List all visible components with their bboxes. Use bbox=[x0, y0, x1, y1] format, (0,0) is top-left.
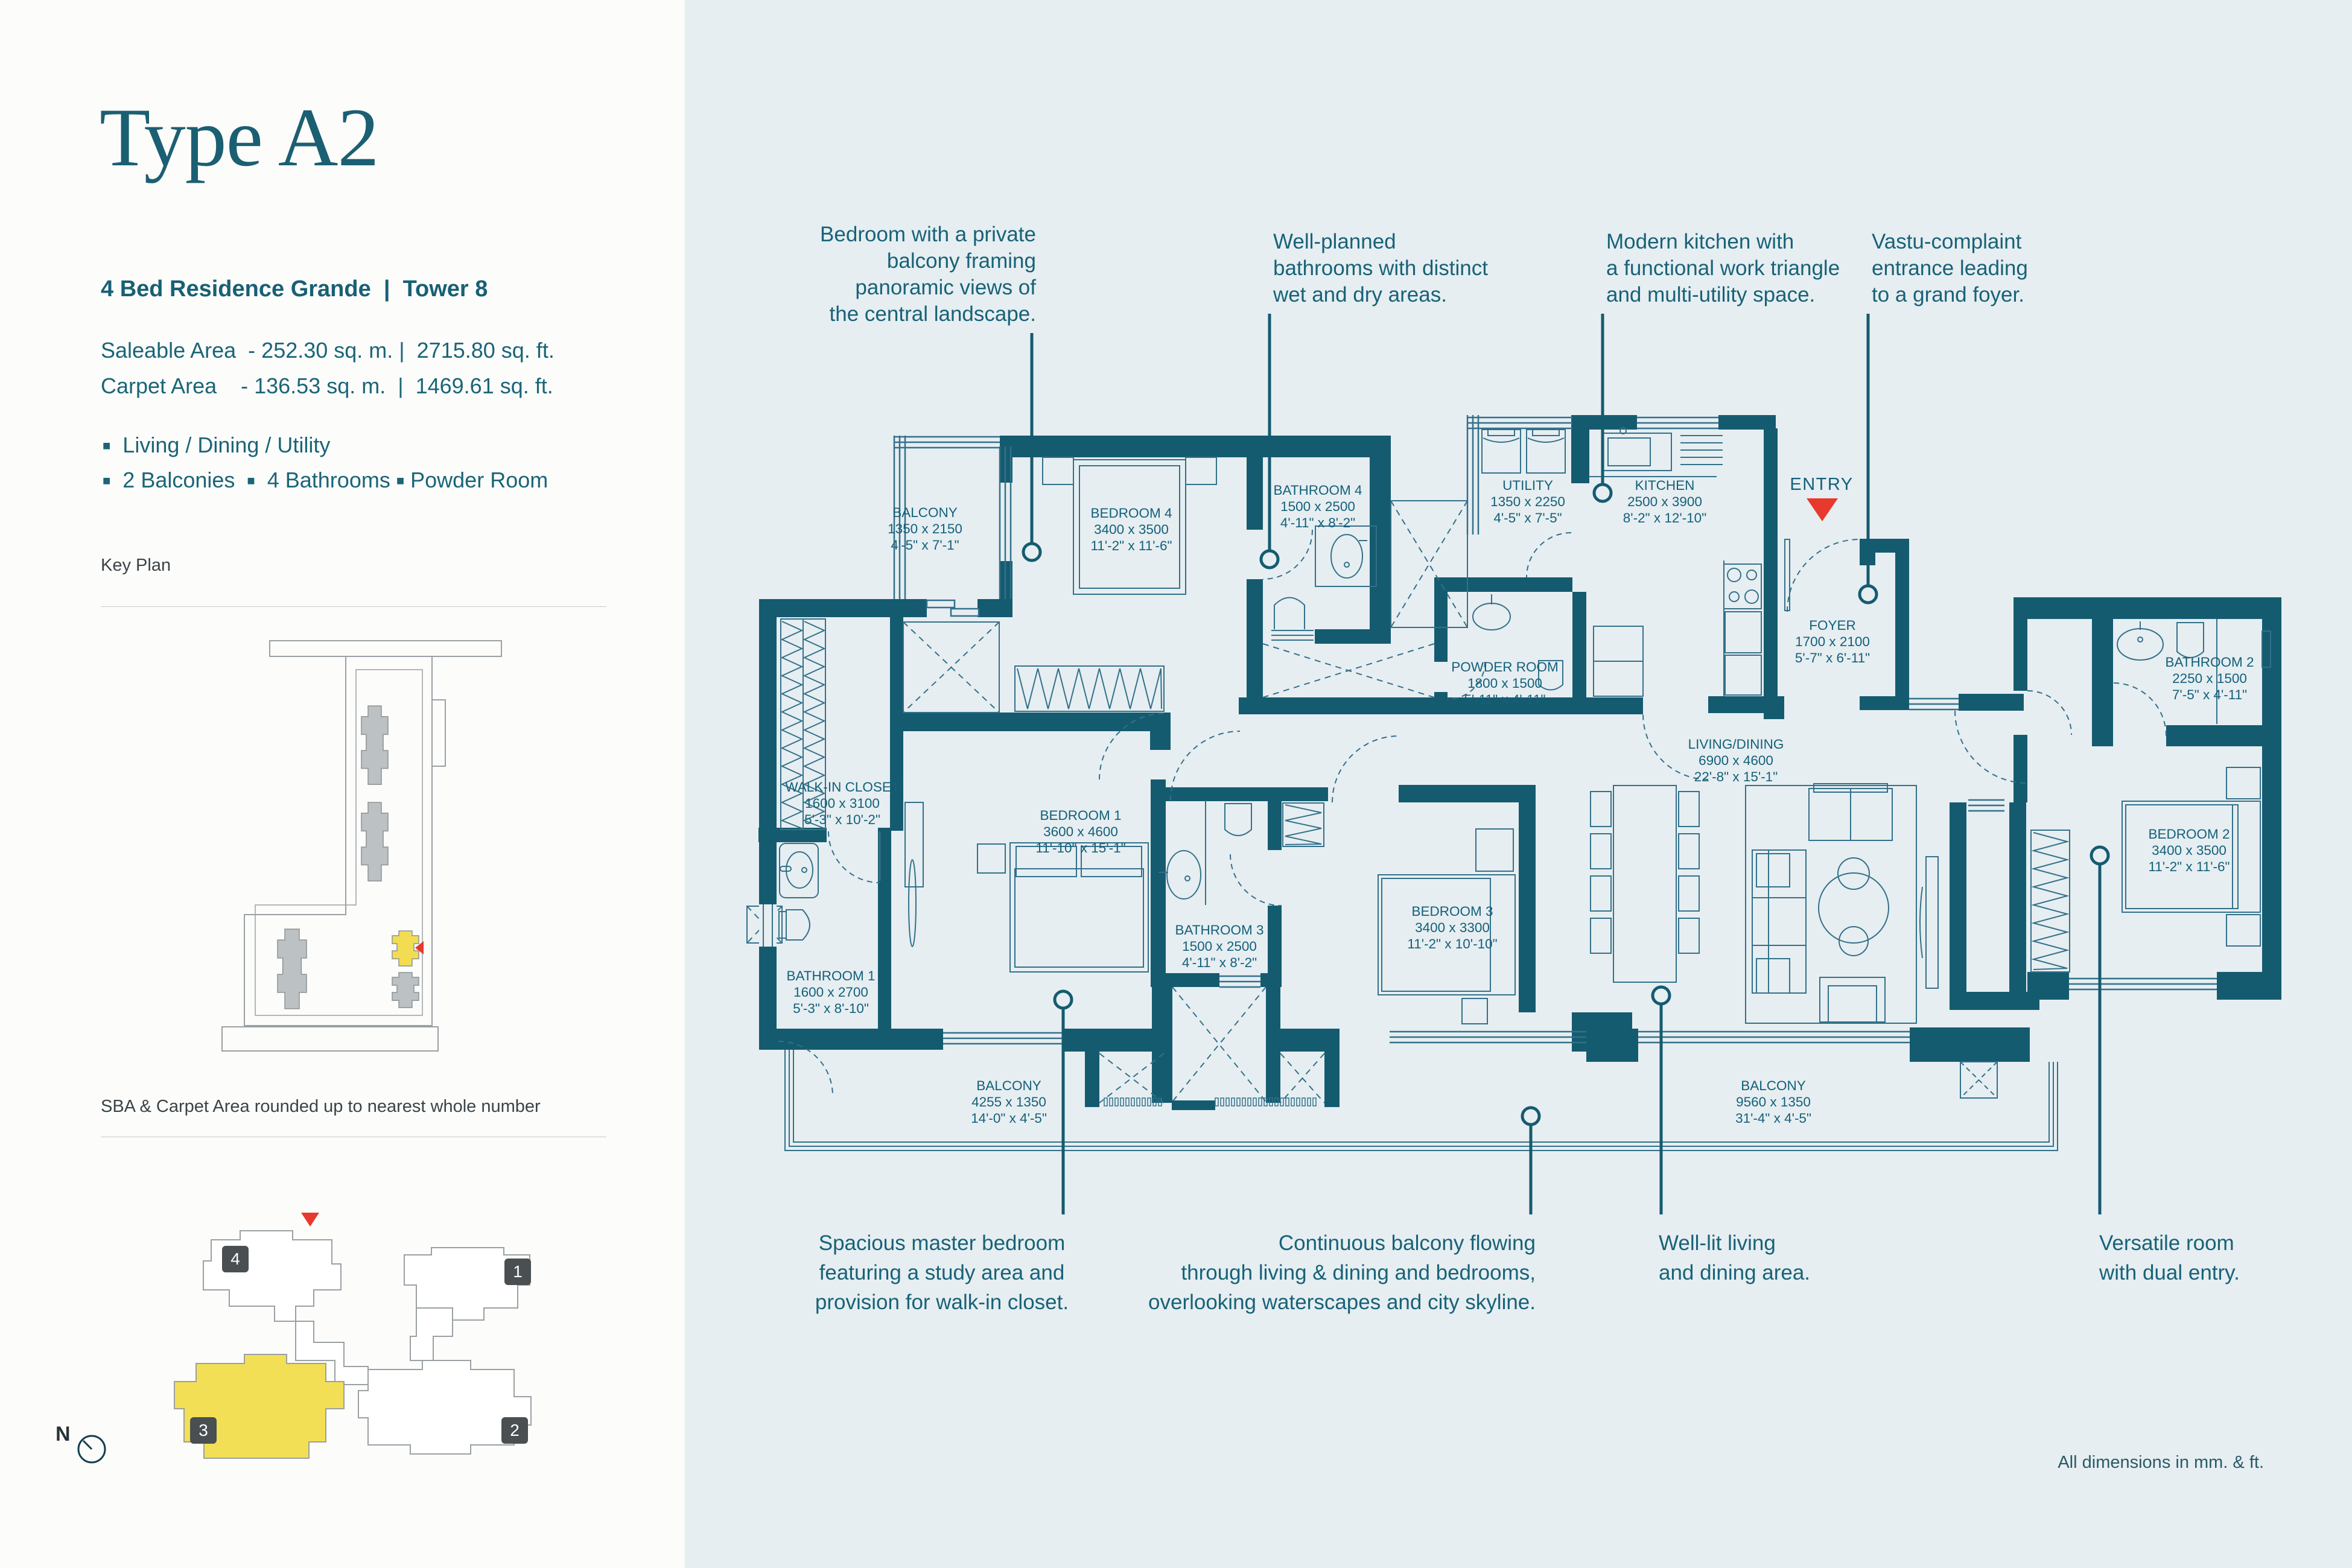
svg-text:BEDROOM 33400 x 330011'-2" x 1: BEDROOM 33400 x 330011'-2" x 10'-10" bbox=[1407, 904, 1497, 951]
svg-text:through living & dining and be: through living & dining and bedrooms, bbox=[1181, 1261, 1536, 1284]
svg-text:KITCHEN2500 x 39008'-2" x 12'-: KITCHEN2500 x 39008'-2" x 12'-10" bbox=[1623, 478, 1706, 525]
svg-text:BATHROOM 11600 x 27005'-3" x 8: BATHROOM 11600 x 27005'-3" x 8'-10" bbox=[786, 968, 875, 1016]
svg-text:BEDROOM 43400 x 350011'-2" x 1: BEDROOM 43400 x 350011'-2" x 11'-6" bbox=[1090, 506, 1172, 553]
svg-text:LIVING/DINING6900 x 460022'-8": LIVING/DINING6900 x 460022'-8" x 15'-1" bbox=[1688, 737, 1784, 784]
svg-text:Continuous balcony flowing: Continuous balcony flowing bbox=[1279, 1231, 1536, 1255]
svg-text:panoramic views of: panoramic views of bbox=[855, 276, 1036, 299]
svg-text:wet and dry areas.: wet and dry areas. bbox=[1273, 283, 1447, 306]
svg-text:featuring a study area and: featuring a study area and bbox=[819, 1261, 1065, 1284]
svg-text:overlooking waterscapes and ci: overlooking waterscapes and city skyline… bbox=[1148, 1290, 1536, 1314]
svg-text:BATHROOM 41500 x 25004'-11" x: BATHROOM 41500 x 25004'-11" x 8'-2" bbox=[1273, 483, 1362, 530]
svg-text:FOYER1700 x 21005'-7" x 6'-11": FOYER1700 x 21005'-7" x 6'-11" bbox=[1795, 618, 1870, 665]
svg-text:Well-planned: Well-planned bbox=[1273, 230, 1396, 253]
svg-text:BEDROOM 23400 x 350011'-2" x 1: BEDROOM 23400 x 350011'-2" x 11'-6" bbox=[2148, 827, 2230, 874]
svg-text:Modern kitchen with: Modern kitchen with bbox=[1606, 230, 1794, 253]
svg-text:BEDROOM 13600 x 460011'-10" x: BEDROOM 13600 x 460011'-10" x 15'-1" bbox=[1035, 808, 1125, 855]
svg-text:a functional work triangle: a functional work triangle bbox=[1606, 256, 1840, 280]
svg-text:UTILITY1350 x 22504'-5" x 7'-5: UTILITY1350 x 22504'-5" x 7'-5" bbox=[1490, 478, 1565, 525]
svg-text:and dining area.: and dining area. bbox=[1659, 1261, 1810, 1284]
svg-text:BATHROOM 31500 x 25004'-11" x: BATHROOM 31500 x 25004'-11" x 8'-2" bbox=[1175, 922, 1263, 970]
svg-text:BALCONY1350 x 21504'-5" x 7'-1: BALCONY1350 x 21504'-5" x 7'-1" bbox=[888, 505, 962, 553]
svg-text:WALK-IN CLOSET1600 x 31005'-3": WALK-IN CLOSET1600 x 31005'-3" x 10'-2" bbox=[785, 779, 899, 827]
svg-text:BATHROOM 22250 x 15007'-5" x 4: BATHROOM 22250 x 15007'-5" x 4'-11" bbox=[2165, 655, 2254, 702]
svg-text:BALCONY4255 x 135014'-0" x 4'-: BALCONY4255 x 135014'-0" x 4'-5" bbox=[971, 1078, 1047, 1126]
svg-text:entrance leading: entrance leading bbox=[1872, 256, 2028, 280]
svg-text:Spacious master bedroom: Spacious master bedroom bbox=[819, 1231, 1066, 1255]
svg-text:POWDER ROOM1800 x 15005'-11" x: POWDER ROOM1800 x 15005'-11" x 4'-11" bbox=[1451, 659, 1559, 707]
svg-text:with dual entry.: with dual entry. bbox=[2099, 1261, 2240, 1284]
svg-text:the central landscape.: the central landscape. bbox=[830, 302, 1036, 326]
svg-text:BALCONY9560 x 135031'-4" x 4'-: BALCONY9560 x 135031'-4" x 4'-5" bbox=[1735, 1078, 1811, 1126]
svg-text:Bedroom with a private: Bedroom with a private bbox=[820, 223, 1036, 246]
svg-text:provision for walk-in closet.: provision for walk-in closet. bbox=[815, 1290, 1069, 1314]
svg-text:balcony framing: balcony framing bbox=[887, 249, 1036, 273]
svg-text:Vastu-complaint: Vastu-complaint bbox=[1872, 230, 2022, 253]
svg-text:Well-lit living: Well-lit living bbox=[1659, 1231, 1776, 1255]
svg-text:Versatile room: Versatile room bbox=[2099, 1231, 2234, 1255]
svg-text:to a grand foyer.: to a grand foyer. bbox=[1872, 283, 2024, 306]
svg-text:ENTRY: ENTRY bbox=[1790, 475, 1853, 494]
svg-text:bathrooms with distinct: bathrooms with distinct bbox=[1273, 256, 1488, 280]
svg-text:and multi-utility space.: and multi-utility space. bbox=[1606, 283, 1815, 306]
